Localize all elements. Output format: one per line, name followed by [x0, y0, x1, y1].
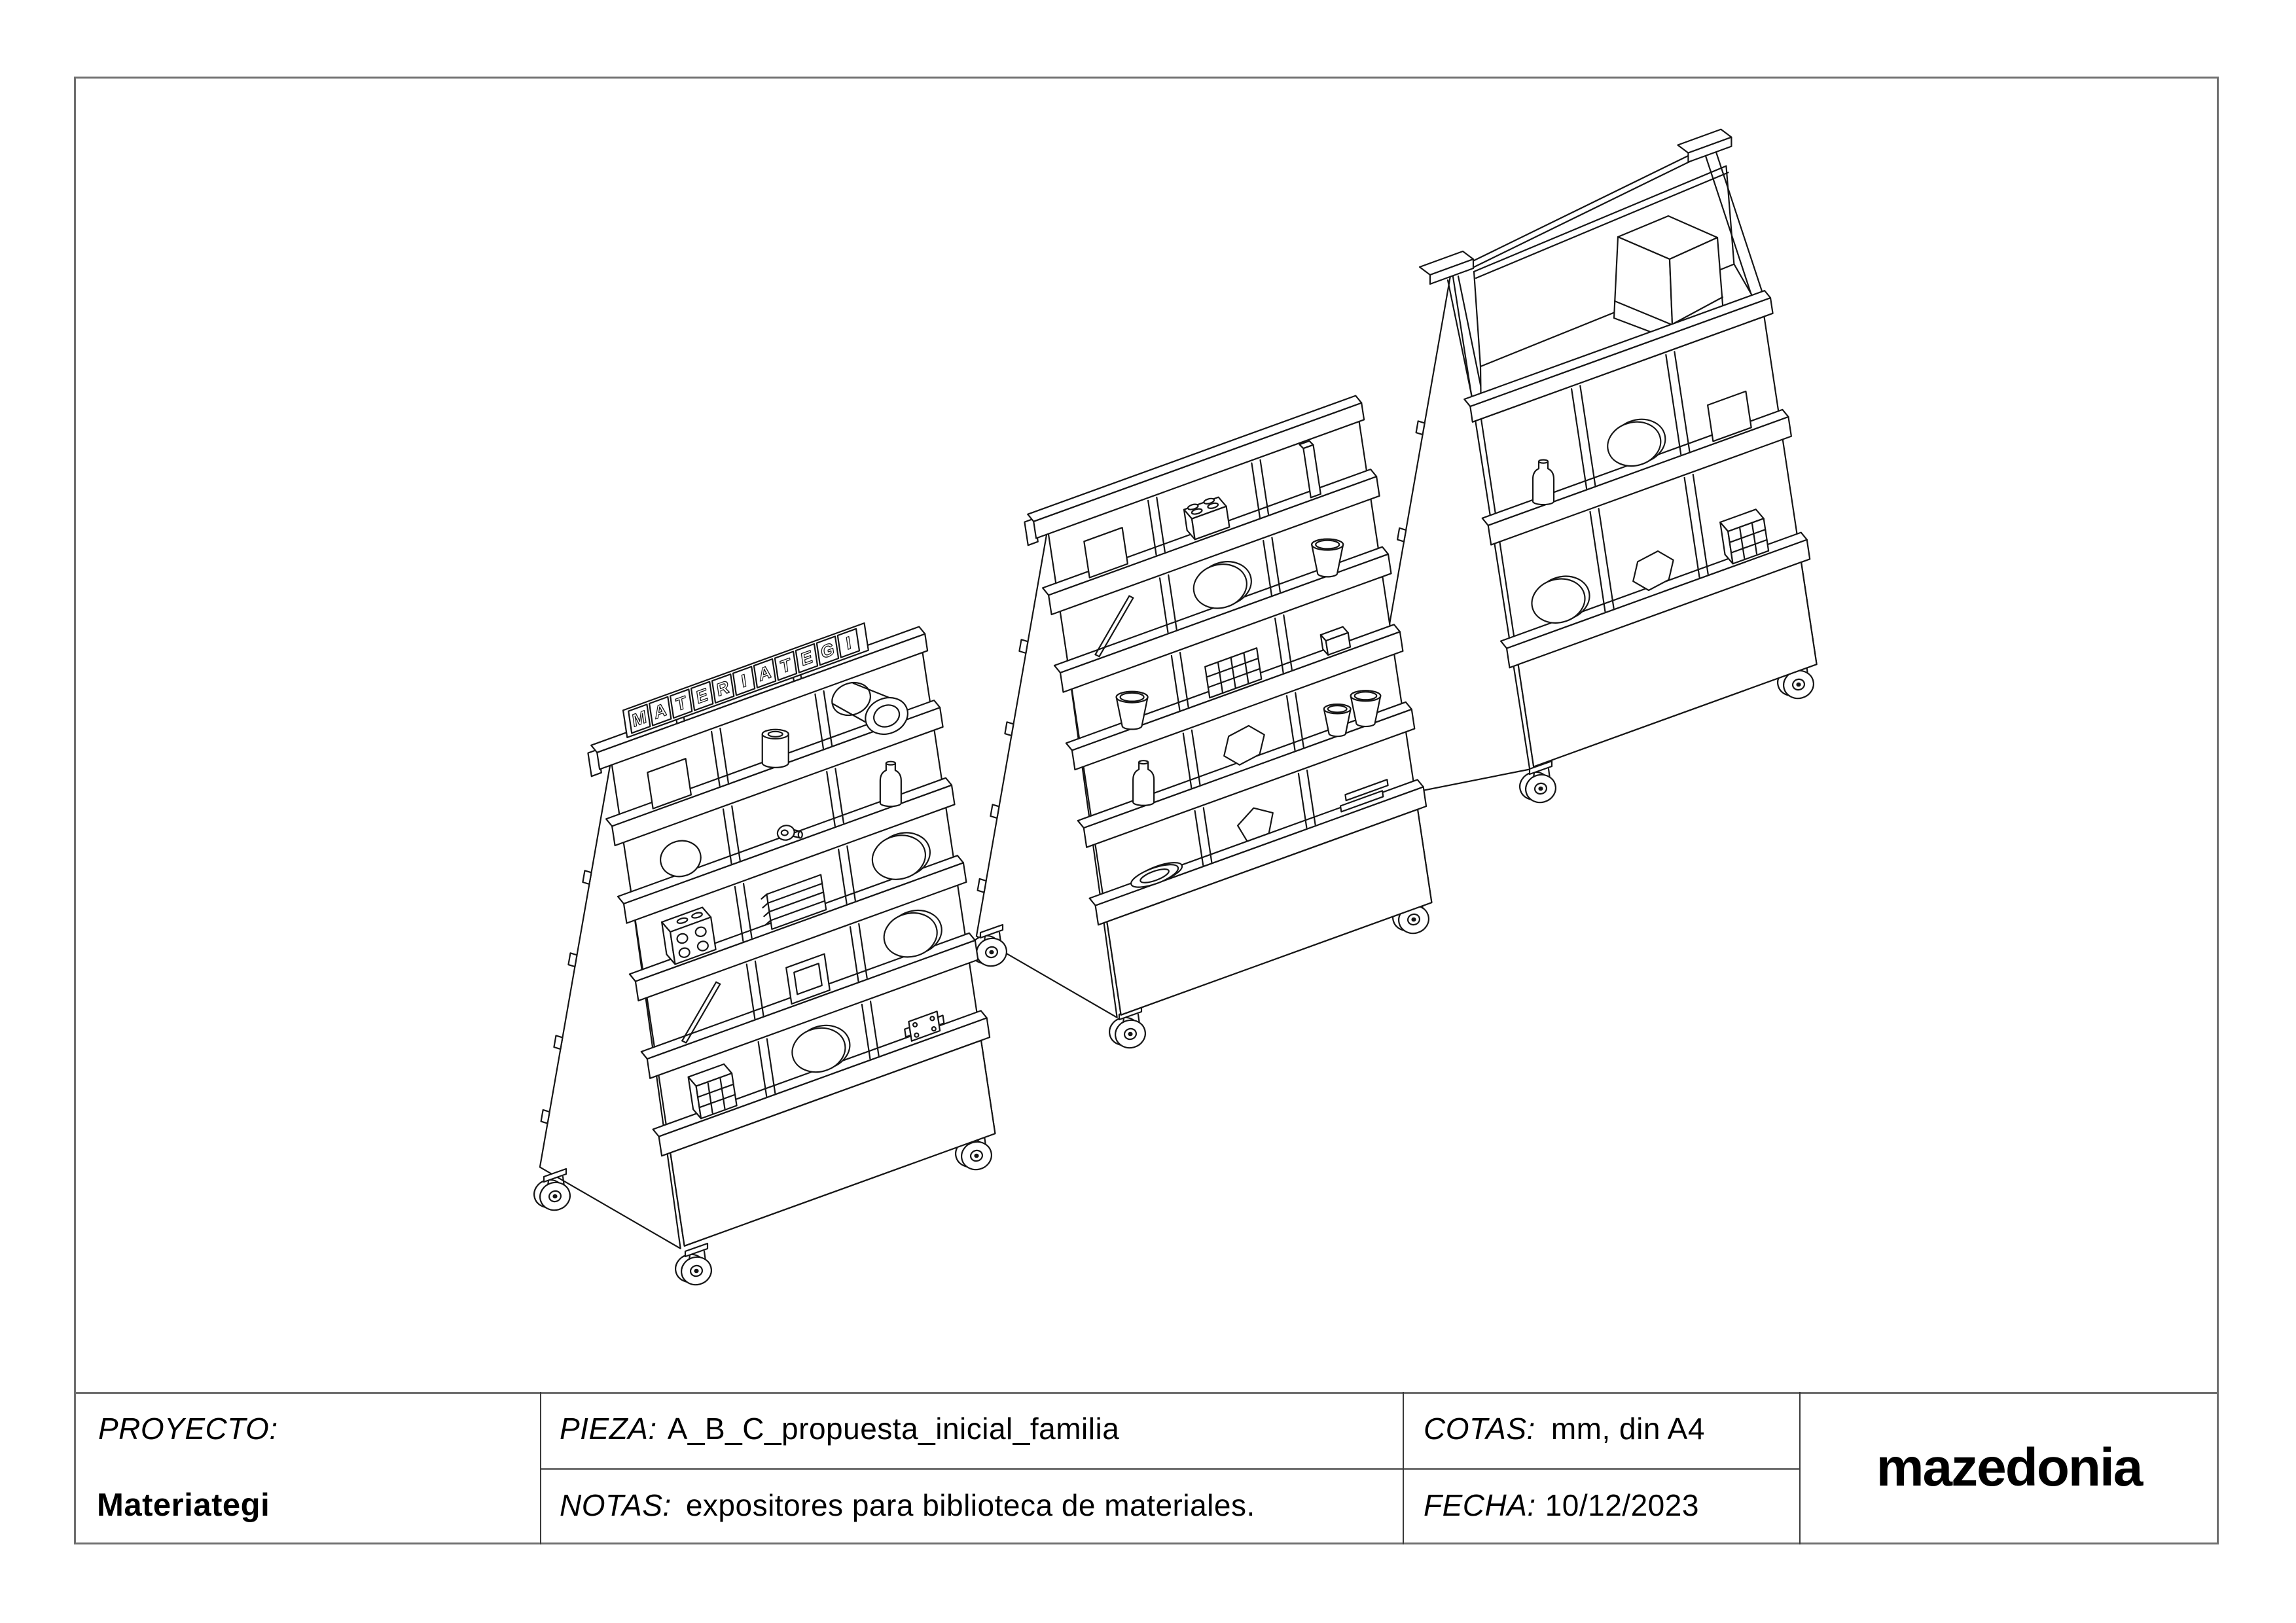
fecha-label: FECHA: — [1424, 1490, 1536, 1520]
titleblock-divider-1 — [540, 1392, 541, 1544]
notas-row: NOTAS: expositores para biblioteca de ma… — [560, 1490, 1255, 1520]
titleblock-mid-line — [540, 1468, 1799, 1470]
drawing-sheet: MATERIATEGI PROYECTO: Materiategi PIEZA:… — [0, 0, 2296, 1623]
pieza-row: PIEZA: A_B_C_propuesta_inicial_familia — [560, 1414, 1119, 1444]
cotas-label: COTAS: — [1424, 1414, 1535, 1444]
fecha-row: FECHA: 10/12/2023 — [1424, 1490, 1699, 1520]
cotas-row: COTAS: mm, din A4 — [1424, 1414, 1705, 1444]
pieza-value: A_B_C_propuesta_inicial_familia — [668, 1414, 1120, 1444]
company-logo: mazedonia — [1799, 1437, 2219, 1499]
fecha-value: 10/12/2023 — [1545, 1490, 1699, 1520]
sheet-border — [74, 77, 2219, 1544]
proyecto-label: PROYECTO: — [98, 1414, 278, 1444]
cotas-value: mm, din A4 — [1551, 1414, 1705, 1444]
proyecto-value: Materiategi — [97, 1489, 270, 1522]
pieza-label: PIEZA: — [560, 1414, 657, 1444]
titleblock-top-line — [74, 1392, 2219, 1394]
notas-label: NOTAS: — [560, 1490, 672, 1520]
notas-value: expositores para biblioteca de materiale… — [686, 1490, 1255, 1520]
titleblock-divider-2 — [1403, 1392, 1404, 1544]
